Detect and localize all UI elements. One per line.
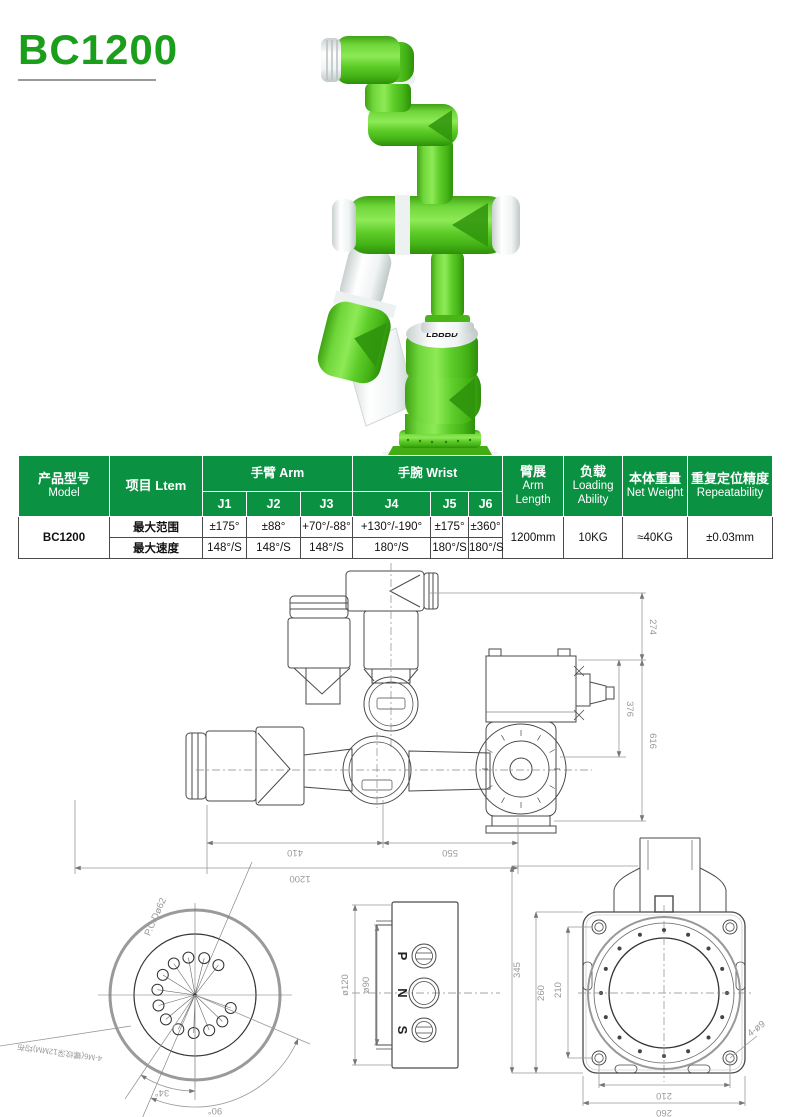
- cell-j1-speed: 148°/S: [203, 538, 247, 559]
- cell-model-value: BC1200: [19, 517, 110, 559]
- dim-260-bottom: 260: [656, 1107, 672, 1117]
- header-repeat-zh: 重复定位精度: [688, 471, 772, 487]
- cell-net-weight: ≈40KG: [623, 517, 688, 559]
- dim-376: 376: [624, 701, 635, 717]
- cell-repeatability: ±0.03mm: [688, 517, 773, 559]
- header-j2: J2: [247, 492, 301, 517]
- header-j3: J3: [301, 492, 353, 517]
- dim-260-left: 260: [536, 985, 547, 1001]
- header-load-en1: Loading: [564, 480, 622, 494]
- cell-j4-speed: 180°/S: [353, 538, 431, 559]
- header-reach-en1: Arm: [503, 480, 563, 494]
- header-j6: J6: [469, 492, 503, 517]
- cell-j2-range: ±88°: [247, 517, 301, 538]
- cell-j3-range: +70°/-88°: [301, 517, 353, 538]
- header-loading: 负载 Loading Ability: [564, 456, 623, 517]
- header-weight-zh: 本体重量: [623, 471, 687, 487]
- header-wrist-group: 手腕 Wrist: [353, 456, 503, 492]
- dim-1200: 1200: [289, 873, 310, 884]
- header-repeat-en: Repeatability: [688, 487, 772, 501]
- header-j4: J4: [353, 492, 431, 517]
- dim-345: 345: [512, 962, 523, 978]
- header-j1: J1: [203, 492, 247, 517]
- flange-bolt-note: 4-M6(螺纹深12MM)均布: [16, 1042, 102, 1064]
- spec-sheet-page: BC1200: [0, 0, 790, 1117]
- header-load-en2: Ability: [564, 494, 622, 508]
- cell-j6-range: ±360°: [469, 517, 503, 538]
- port-label-s: S: [395, 1026, 410, 1035]
- side-view-drawing: 274 616 376 410 550 1200: [75, 563, 658, 884]
- port-label-n: N: [395, 988, 410, 997]
- header-load-zh: 负载: [564, 464, 622, 480]
- cell-j5-range: ±175°: [431, 517, 469, 538]
- dim-90deg: 90°: [208, 1105, 223, 1116]
- cell-j6-speed: 180°/S: [469, 538, 503, 559]
- cell-j2-speed: 148°/S: [247, 538, 301, 559]
- header-item: 项目 Ltem: [110, 456, 203, 517]
- header-item-label: 项目 Ltem: [110, 478, 202, 494]
- dim-dia120: ø120: [340, 974, 351, 996]
- cell-j5-speed: 180°/S: [431, 538, 469, 559]
- cell-item-range: 最大范围: [110, 517, 203, 538]
- cell-j1-range: ±175°: [203, 517, 247, 538]
- cell-item-speed: 最大速度: [110, 538, 203, 559]
- base-plate-drawing: 345 260 210 210 260 4-ø9: [512, 838, 768, 1117]
- robot-end-effector: [321, 36, 414, 84]
- header-arm-group: 手臂 Arm: [203, 456, 353, 492]
- header-weight-en: Net Weight: [623, 487, 687, 501]
- robot-wrist-link: [421, 250, 474, 333]
- dim-274: 274: [647, 619, 658, 635]
- cell-j3-speed: 148°/S: [301, 538, 353, 559]
- cell-loading: 10KG: [564, 517, 623, 559]
- header-reach-en2: Length: [503, 494, 563, 508]
- spec-table: 产品型号 Model 项目 Ltem 手臂 Arm 手腕 Wrist 臂展 Ar…: [18, 455, 773, 559]
- robot-render: LBBBD: [314, 36, 520, 458]
- dim-210-left: 210: [553, 982, 564, 998]
- table-row-max-range: BC1200 最大范围 ±175° ±88° +70°/-88° +130°/-…: [19, 517, 773, 538]
- robot-upper-tube: [417, 136, 453, 204]
- dim-34deg: 34°: [155, 1087, 170, 1098]
- header-net-weight: 本体重量 Net Weight: [623, 456, 688, 517]
- header-repeatability: 重复定位精度 Repeatability: [688, 456, 773, 517]
- wrist-side-drawing: P N S ø120 ø90: [340, 902, 500, 1068]
- header-reach-zh: 臂展: [503, 464, 563, 480]
- dim-210-bottom: 210: [656, 1090, 672, 1101]
- header-arm-length: 臂展 Arm Length: [503, 456, 564, 517]
- header-j5: J5: [431, 492, 469, 517]
- dim-616: 616: [647, 733, 658, 749]
- dim-550: 550: [442, 847, 458, 858]
- cell-arm-length: 1200mm: [503, 517, 564, 559]
- cell-j4-range: +130°/-190°: [353, 517, 431, 538]
- header-model-zh: 产品型号: [19, 471, 109, 487]
- port-label-p: P: [395, 952, 410, 961]
- flange-drawing: P.C.Dø62 4-M6(螺纹深12MM)均布 34° 90°: [0, 862, 310, 1117]
- dim-410: 410: [287, 847, 303, 858]
- header-model: 产品型号 Model: [19, 456, 110, 517]
- robot-elbow-assembly: [332, 195, 520, 255]
- dim-dia90: ø90: [361, 977, 372, 993]
- header-model-en: Model: [19, 487, 109, 501]
